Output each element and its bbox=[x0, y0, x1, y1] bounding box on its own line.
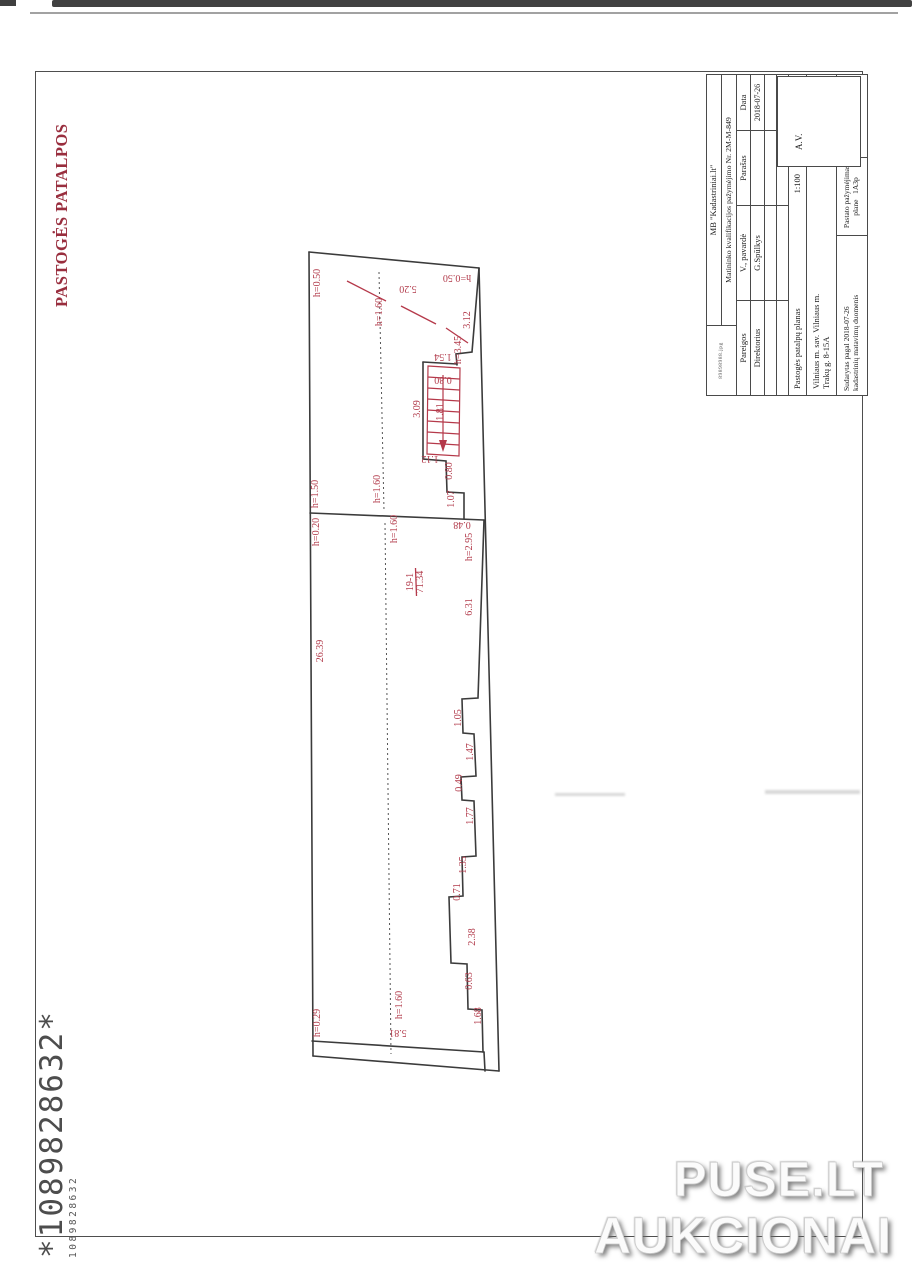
plan-title-row: Pastogės patalpų planas 1:100 bbox=[789, 165, 807, 395]
address-cell: Vilniaus m. sav. Vilniaus m. Trakų g. 8-… bbox=[807, 165, 837, 395]
empty-cell bbox=[777, 300, 789, 395]
basis-line2: kadastrinių matavimų duomenis bbox=[852, 295, 861, 391]
barcode-number-small: 1089828632 bbox=[68, 1098, 84, 1258]
scan-artifact-top-line bbox=[30, 12, 898, 14]
page-title-vertical: PASTOGĖS PATALPOS bbox=[52, 112, 82, 307]
barcode-small-text: 1089828632 bbox=[68, 1098, 84, 1258]
title-block: 89898988.jpg MB "Kadastriniai.lt" Matini… bbox=[706, 76, 866, 396]
address-line2: Trakų g. 8-15A bbox=[822, 294, 832, 389]
qualification-cell: Matininko kvalifikacijos pažymėjimo Nr. … bbox=[722, 75, 737, 325]
empty-cell bbox=[765, 75, 777, 130]
stamp-area: A.V. bbox=[777, 76, 861, 167]
watermark-line1: PUSE.LT bbox=[674, 1152, 884, 1208]
header-name: V., pavardė bbox=[737, 205, 751, 300]
watermark-line2: AUKCIONAI bbox=[594, 1206, 892, 1265]
company-cell: MB "Kadastriniai.lt" bbox=[707, 75, 722, 325]
empty-cell bbox=[765, 130, 777, 205]
plan-scale: 1:100 bbox=[793, 174, 803, 193]
building-mark-cell: Pastato pažymėjimas plane 1A3p bbox=[837, 157, 867, 235]
building-mark-label2: plane bbox=[851, 200, 860, 216]
scanned-floor-plan-page: PASTOGĖS PATALPOS bbox=[0, 0, 912, 1280]
value-position: Direktorius bbox=[751, 300, 765, 395]
basis-cell: Sudarytas pagal 2018-07-26 kadastrinių m… bbox=[837, 235, 867, 395]
value-name: G.Spūlkys bbox=[751, 205, 765, 300]
file-note-cell: 89898988.jpg bbox=[707, 325, 737, 395]
header-position: Pareigos bbox=[737, 300, 751, 395]
title-block-table: 89898988.jpg MB "Kadastriniai.lt" Matini… bbox=[706, 74, 868, 396]
value-signature bbox=[751, 130, 765, 205]
building-mark-value: 1A3p bbox=[851, 177, 860, 194]
empty-cell bbox=[765, 300, 777, 395]
header-date: Data bbox=[737, 75, 751, 130]
stamp-label: A.V. bbox=[794, 134, 804, 150]
plan-title: Pastogės patalpų planas bbox=[793, 308, 803, 389]
empty-cell bbox=[765, 205, 777, 300]
empty-cell bbox=[777, 205, 789, 300]
scan-artifact-corner bbox=[0, 0, 16, 6]
page-title: PASTOGĖS PATALPOS bbox=[52, 112, 82, 307]
scan-artifact-top-bar bbox=[52, 0, 912, 7]
header-signature: Parašas bbox=[737, 130, 751, 205]
value-date: 2018-07-26 bbox=[751, 75, 765, 130]
